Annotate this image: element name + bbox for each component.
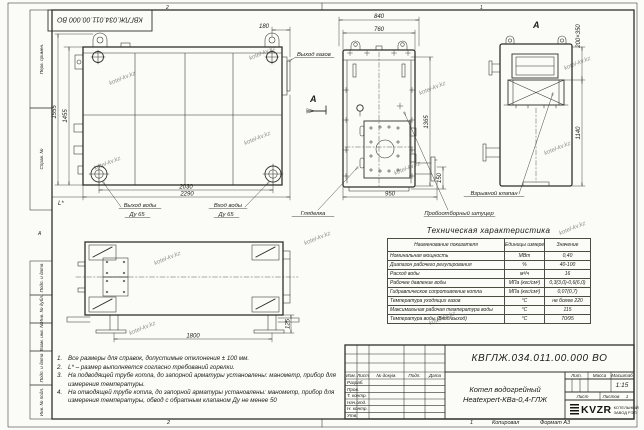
tech-cell: 16	[545, 270, 591, 279]
tech-row: Температура воды (Вход/выход)°С70/95	[388, 315, 591, 324]
margin-stamp-column: Перв. примен. Справ. № Подп. и дата Инв.…	[30, 10, 52, 419]
dim-1555: 1555	[52, 105, 58, 119]
margin-label: Взам. инв. №	[39, 323, 44, 351]
sign-utv: Утв.	[347, 412, 369, 418]
dim-2290: 2290	[179, 192, 194, 198]
lit-label: Лит.	[566, 373, 587, 379]
watermark-text: kotel-kv.kz	[154, 251, 182, 267]
product-line1: Котел водогрейный	[469, 385, 540, 395]
note-number: 1.	[54, 355, 66, 363]
tech-row: Максимальная рабочая температура воды°С1…	[388, 306, 591, 315]
company-description: КОТЕЛЬНЫЙ ЗАВОД РЭП	[614, 405, 639, 415]
zone-number: 1	[480, 5, 483, 11]
label-water-outlet-dn: Ду 65	[128, 212, 145, 218]
tech-cell: 115	[545, 306, 591, 315]
tech-cell: %	[505, 261, 545, 270]
label-gas-outlet: Выход газов	[297, 52, 331, 58]
sign-razrab: Разраб.	[347, 380, 369, 386]
dim-1365: 1365	[424, 115, 430, 129]
tech-row: Рабочее давление водыМПа (кгс/см²)0,3(3,…	[388, 279, 591, 288]
stamp-doc-number: КВГЛЖ.034.011.00.000 ВО	[57, 16, 143, 23]
top-stamp: КВГЛЖ.034.011.00.000 ВО	[48, 10, 152, 31]
header-podp: Подп.	[404, 373, 425, 379]
sheets-label: Листов	[601, 393, 621, 400]
fold-mark: А	[37, 231, 42, 237]
product-line2: Heatexpert-КВа-0,4-ГЛЖ	[463, 395, 547, 405]
tech-cell: 70/95	[545, 315, 591, 324]
label-explosion-valve: Взрывной клапан	[470, 190, 518, 197]
dim-1140: 1140	[576, 126, 582, 140]
note-number: 3.	[54, 372, 66, 388]
margin-label: Перв. примен.	[39, 44, 44, 75]
company-desc-line2: ЗАВОД РЭП	[614, 410, 639, 415]
tech-row: Температура уходящих газов°Сне более 220	[388, 297, 591, 306]
tech-cell: °С	[505, 315, 545, 324]
note-text: На подводящей трубе котла, до запорной а…	[68, 372, 356, 388]
note-item: 3.На подводящей трубе котла, до запорной…	[54, 372, 356, 388]
header-izm: Изм.	[345, 373, 357, 379]
tech-cell: 0,07(0,7)	[545, 288, 591, 297]
watermark-text: kotel-kv.kz	[94, 156, 122, 172]
watermark-text: kotel-kv.kz	[249, 46, 277, 62]
tech-characteristics: Техническая характеристика Наименование …	[387, 226, 590, 324]
zone-bottom-left: 2	[167, 420, 170, 426]
note-text: L* – размер выполняется согласно требова…	[68, 364, 356, 372]
mass-label: Масса	[589, 373, 610, 379]
margin-label: Инв. № подл.	[39, 388, 44, 417]
note-item: 1.Все размеры для справок, допустимые от…	[54, 355, 356, 363]
dim-125: 125	[286, 318, 292, 329]
tech-cell: Расход воды	[388, 270, 505, 279]
tech-cell: Температура воды (Вход/выход)	[388, 315, 505, 324]
tech-cell: Гидравлическое сопротивление котла	[388, 288, 505, 297]
view-rear: А 200×350 1140 Взрывной клапан	[464, 20, 585, 197]
note-number: 2.	[54, 364, 66, 372]
margin-label: Инв. № дубл.	[39, 295, 44, 323]
tech-cell: 0,3(3,0)-0,6(6,0)	[545, 279, 591, 288]
watermark-text: kotel-kv.kz	[419, 81, 447, 97]
note-item: 2.L* – размер выполняется согласно требо…	[54, 364, 356, 372]
dim-1800: 1800	[186, 334, 200, 340]
format-label: Формат А3	[540, 420, 570, 426]
dim-950: 950	[385, 192, 396, 198]
label-sampling-fitting: Пробоотборный штуцер	[424, 210, 494, 217]
label-water-inlet: Вход воды	[214, 203, 243, 209]
margin-label: Справ. №	[39, 149, 44, 170]
tech-row: Диапазон рабочего регулирования%40-100	[388, 261, 591, 270]
dim-L: L*	[58, 201, 64, 207]
tech-cell: м³/ч	[505, 270, 545, 279]
label-water-outlet: Выход воды	[124, 203, 157, 209]
scale-label: Масштаб	[611, 373, 633, 379]
tech-cell: Диапазон рабочего регулирования	[388, 261, 505, 270]
dim-2030: 2030	[178, 185, 193, 191]
tech-header-row: Наименование показателя Единицы измерени…	[388, 239, 591, 252]
tech-row: Номинальная мощностьМВт0,40	[388, 252, 591, 261]
sign-prov: Пров.	[347, 386, 369, 392]
tech-cell: Номинальная мощность	[388, 252, 505, 261]
drawing-sheet: { "watermark": "kotel-kv.kz", "frame": {…	[0, 0, 644, 430]
tech-cell: МПа (кгс/см²)	[505, 288, 545, 297]
sign-tkontr: Т. контр.	[347, 393, 369, 399]
tech-cell: Температура уходящих газов	[388, 297, 505, 306]
view-side: 1555 1455 180 2030 2290 L* Выход газов В…	[52, 24, 334, 218]
tech-header-value: Значение	[545, 239, 591, 252]
note-text: На отводящей трубе котла, до запорной ар…	[68, 389, 356, 405]
header-list: Лист	[357, 373, 369, 379]
header-data: Дата	[425, 373, 445, 379]
tech-cell: 0,40	[545, 252, 591, 261]
tech-cell: Максимальная рабочая температура воды	[388, 306, 505, 315]
dim-840: 840	[374, 14, 385, 20]
notes-list: 1.Все размеры для справок, допустимые от…	[54, 355, 356, 406]
zone-bottom-right: 1	[470, 420, 473, 426]
sign-nkontr: Н. контр.	[347, 406, 369, 412]
tech-cell: Рабочее давление воды	[388, 279, 505, 288]
tech-row: Расход водым³/ч16	[388, 270, 591, 279]
view-top: 1800 125	[67, 242, 299, 342]
dim-760: 760	[374, 27, 385, 33]
dim-200x350: 200×350	[576, 24, 582, 49]
watermark-text: kotel-kv.kz	[564, 56, 592, 72]
tech-header-name: Наименование показателя	[388, 239, 505, 252]
tech-cell: °С	[505, 297, 545, 306]
sheets-value: 1	[621, 393, 633, 400]
watermark-text: kotel-kv.kz	[304, 231, 332, 247]
zone-number: 2	[165, 5, 169, 11]
watermark-text: kotel-kv.kz	[244, 131, 272, 147]
titleblock-product-name: Котел водогрейный Heatexpert-КВа-0,4-ГЛЖ	[446, 373, 564, 417]
margin-label: Подп. и дата	[39, 263, 44, 292]
view-a-title: А	[532, 20, 540, 30]
tech-cell: не более 220	[545, 297, 591, 306]
dim-180: 180	[259, 24, 270, 30]
watermark-text: kotel-kv.kz	[544, 141, 572, 157]
copied-label: Копировал	[492, 420, 519, 426]
dim-1455: 1455	[63, 109, 69, 123]
scale-value: 1:15	[611, 380, 633, 391]
view-front: 840 760 1365 950 150 Гляделка Пробоотбор…	[292, 14, 495, 217]
note-text: Все размеры для справок, допустимые откл…	[68, 355, 356, 363]
note-item: 4.На отводящей трубе котла, до запорной …	[54, 389, 356, 405]
tech-cell: °С	[505, 306, 545, 315]
label-water-inlet-dn: Ду 65	[217, 212, 234, 218]
tech-header-units: Единицы измерения	[505, 239, 545, 252]
titleblock-doc-number: КВГЛЖ.034.011.00.000 ВО	[446, 346, 633, 371]
tech-table-title: Техническая характеристика	[387, 226, 590, 235]
watermark-text: kotel-kv.kz	[109, 71, 137, 87]
watermark-text: kotel-kv.kz	[129, 321, 157, 337]
tech-cell: МПа (кгс/см²)	[505, 279, 545, 288]
view-arrow-letter: А	[309, 94, 317, 104]
label-sight-glass: Гляделка	[301, 211, 327, 217]
tech-cell: МВт	[505, 252, 545, 261]
margin-label: Подп. и дата	[39, 353, 44, 382]
note-number: 4.	[54, 389, 66, 405]
sheet-label: Лист	[566, 393, 599, 400]
kvzr-emblem-icon	[570, 404, 579, 415]
header-docnum: № докум.	[369, 373, 404, 379]
tech-cell: 40-100	[545, 261, 591, 270]
company-logo: KVZR КОТЕЛЬНЫЙ ЗАВОД РЭП	[570, 402, 639, 417]
tech-row: Гидравлическое сопротивление котлаМПа (к…	[388, 288, 591, 297]
sign-nachotd: Нач.отд.	[347, 399, 369, 405]
company-name: KVZR	[581, 404, 612, 416]
dim-150: 150	[437, 172, 443, 183]
tech-table: Наименование показателя Единицы измерени…	[387, 238, 591, 324]
